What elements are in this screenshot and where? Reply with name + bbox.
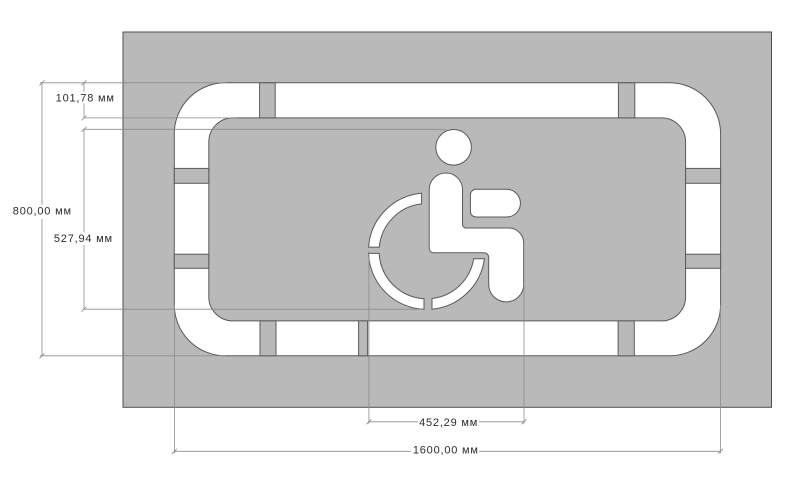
svg-text:800,00 мм: 800,00 мм bbox=[13, 206, 72, 218]
svg-text:527,94 мм: 527,94 мм bbox=[54, 233, 113, 245]
svg-text:452,29 мм: 452,29 мм bbox=[419, 417, 478, 429]
svg-text:101,78 мм: 101,78 мм bbox=[56, 93, 115, 105]
svg-text:1600,00 мм: 1600,00 мм bbox=[413, 445, 479, 457]
